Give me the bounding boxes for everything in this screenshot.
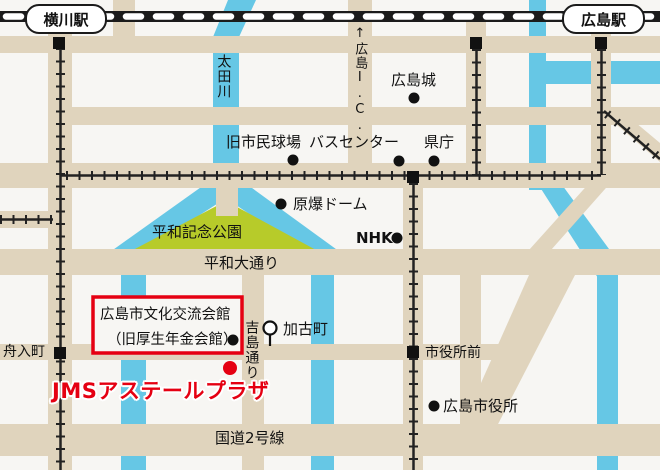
stop-square-yokogawa <box>53 37 65 49</box>
kakocho-stop-icon <box>264 322 277 347</box>
venue-red-dot <box>223 361 237 375</box>
dot-pref-office <box>429 156 440 167</box>
stop-square-funairicho <box>54 347 66 359</box>
map-geometry <box>0 0 660 470</box>
venue-highlight-box <box>93 297 242 353</box>
road-peace-blvd <box>0 249 660 275</box>
dot-hall <box>228 335 239 346</box>
road-top <box>0 36 660 53</box>
dot-old-stadium <box>288 155 299 166</box>
stop-square-hiroshima-sta <box>595 37 607 49</box>
stop-square-kamiyacho <box>407 171 419 183</box>
bridge-park-apex <box>216 178 238 216</box>
road-top-stub <box>113 0 135 53</box>
dot-city-hall <box>429 401 440 412</box>
road-ic <box>348 0 372 188</box>
stop-square-hakushima <box>470 37 482 49</box>
road-yoshijima <box>242 249 264 470</box>
dot-nhk <box>392 233 403 244</box>
stop-square-shiyakushomae <box>407 346 419 358</box>
jr-railway <box>0 11 660 22</box>
access-map: 横川駅 広島駅 太田川 ↑広島I.C. 広島城 旧市民球場 バスセンター 県庁 … <box>0 0 660 470</box>
river-right-vertical <box>529 0 546 190</box>
dot-atomic-dome <box>276 199 287 210</box>
ota-river <box>213 0 256 180</box>
dot-bus-center <box>394 156 405 167</box>
road-route2 <box>0 424 660 456</box>
dot-hiroshima-castle <box>409 93 420 104</box>
